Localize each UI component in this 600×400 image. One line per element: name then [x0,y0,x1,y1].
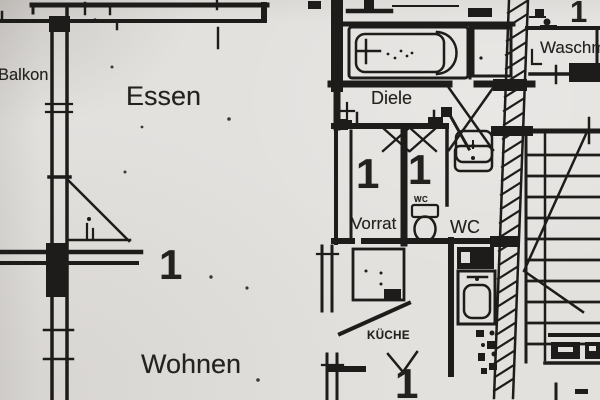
fixture-label-wc-small: WC [414,196,428,204]
room-number-vorrat: 1 [356,153,379,195]
room-label-vorrat: Vorrat [351,215,396,232]
shower-square [470,26,511,78]
wohnen-east-wall [317,246,343,400]
room-label-kueche: KÜCHE [367,331,410,343]
staircase [522,118,600,400]
kitchen-sink [458,271,495,324]
kitchen-cabinet-square [353,249,404,300]
room-label-diele: Diele [371,89,412,107]
room-label-waschraum: Waschm [540,39,600,56]
toilet [412,205,438,242]
room-number-wohnen: 1 [159,244,182,286]
room-label-balkon: Balkon [0,67,48,84]
room-label-wohnen: Wohnen [141,351,241,378]
room-number-kueche: 1 [395,363,418,400]
room-label-essen: Essen [126,83,201,110]
top-left-walls [0,0,321,48]
bathroom-walls [331,0,532,127]
room-number-wc: 1 [408,149,431,191]
kitchen-tiled-strip [476,330,497,374]
floor-plan-linework [0,0,600,400]
kitchen-walls [330,240,494,374]
balcony-door-swing [0,179,141,263]
room-label-wc: WC [450,218,480,236]
room-number-waschraum: 1 [570,0,587,27]
scan-specks [93,18,342,382]
floor-plan-scan: Balkon Essen Diele Waschm Vorrat WC WC K… [0,0,600,400]
bathtub [349,27,468,78]
wc-washbasin [455,141,492,171]
